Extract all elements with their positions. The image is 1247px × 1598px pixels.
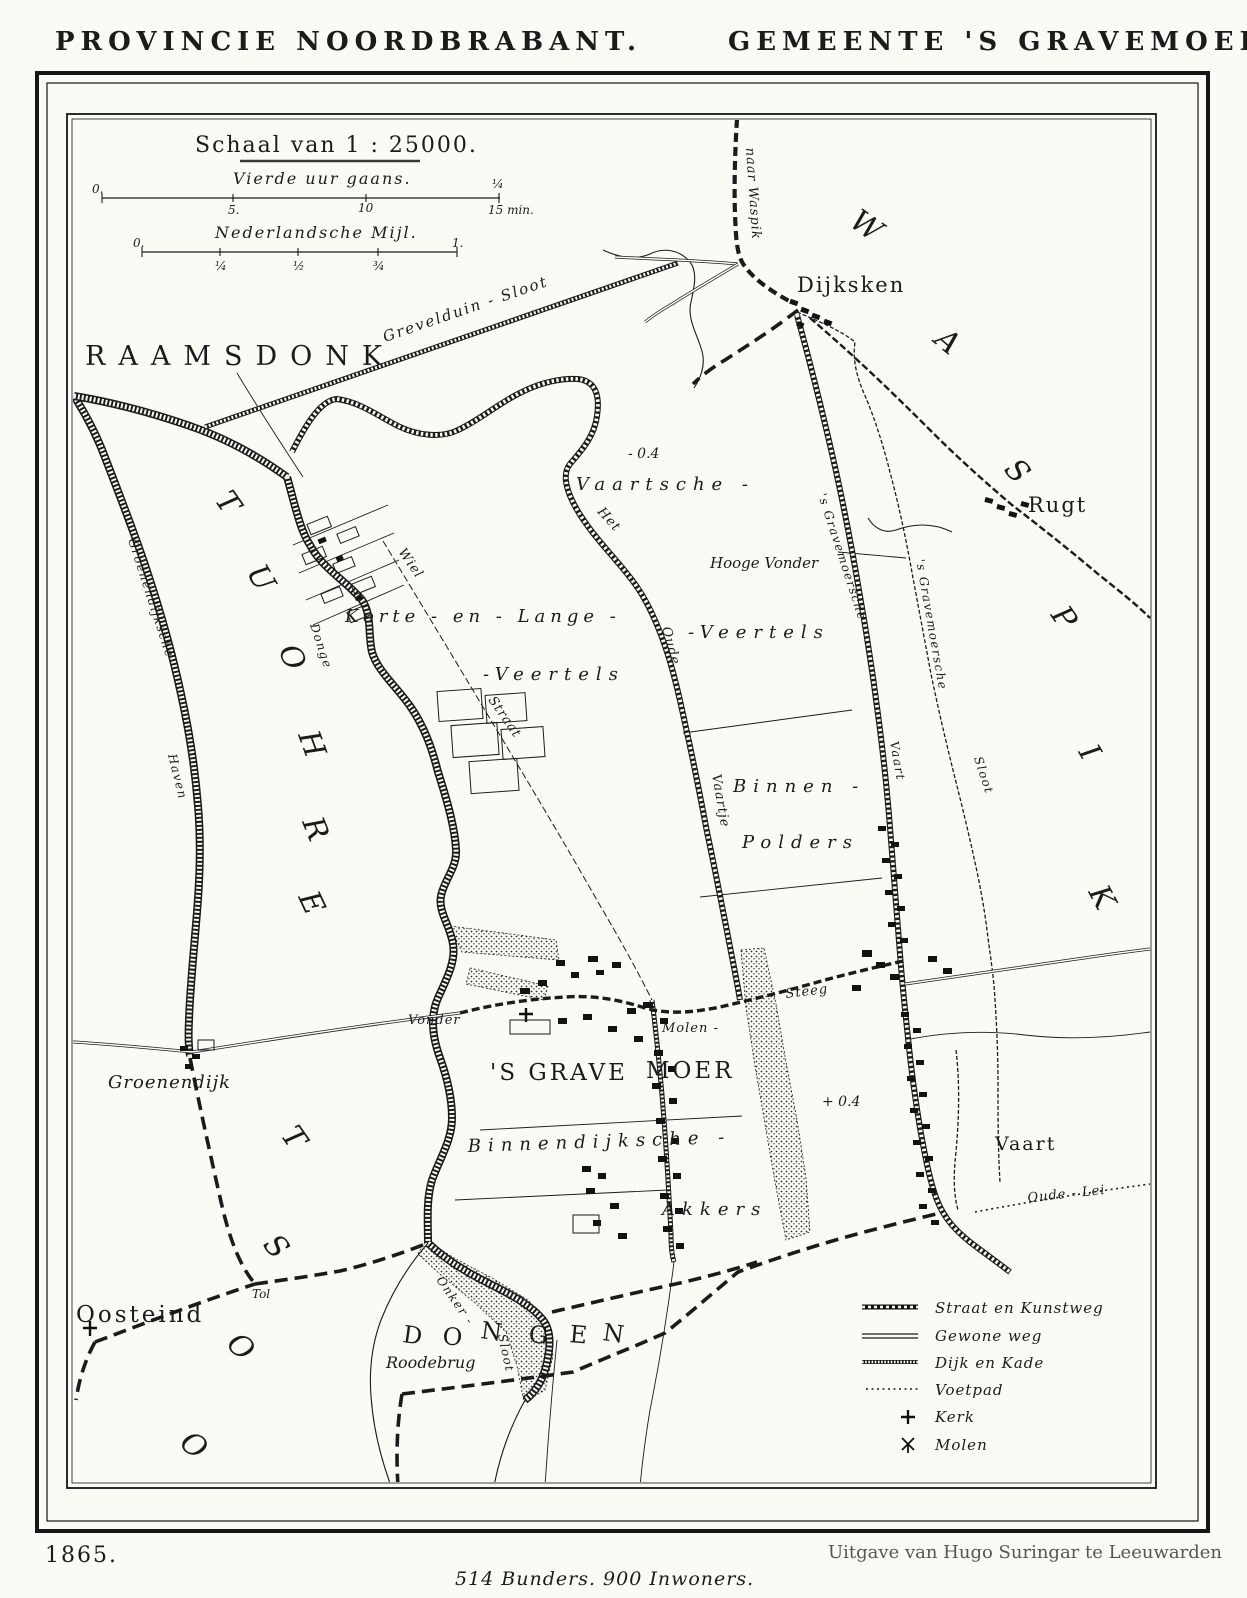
label-elevation-pos: + 0.4 — [822, 1094, 860, 1110]
spread-letter: T — [207, 485, 248, 523]
legend-label: Straat en Kunstweg — [935, 1299, 1104, 1317]
label-oosteind: Oosteind — [76, 1302, 204, 1328]
footer-year: 1865. — [45, 1543, 118, 1568]
legend-label: Gewone weg — [935, 1327, 1042, 1345]
spread-letter: R — [294, 811, 335, 846]
legend-label: Molen — [934, 1436, 988, 1454]
legend-item-paved-road: Straat en Kunstweg — [862, 1299, 1104, 1317]
spread-letter: P — [1043, 599, 1084, 637]
label-polders: Polders — [741, 832, 859, 853]
map-legend: Straat en Kunstweg Gewone weg Dijk en Ka… — [862, 1299, 1104, 1454]
spread-letter: O — [271, 639, 313, 676]
label-groenendijksche: Groenendijksche — [125, 537, 177, 660]
label-donge: Donge — [307, 621, 335, 671]
scale-tick: 1. — [452, 236, 463, 250]
spread-letter: U — [239, 559, 283, 600]
scale-bar1-label: Vierde uur gaans. — [233, 169, 412, 188]
scale-bar2-label: Nederlandsche Mijl. — [214, 223, 418, 242]
label-haven: Haven — [165, 751, 190, 801]
scale-block: Schaal van 1 : 25000. Vierde uur gaans. … — [92, 133, 534, 273]
church-icon — [510, 1008, 550, 1034]
molen-steeg-road — [460, 949, 1150, 1013]
label-dijksken: Dijksken — [797, 273, 905, 297]
legend-item-windmill: Molen — [902, 1436, 988, 1454]
scale-tick: ¾ — [373, 259, 385, 273]
spread-letter: G — [527, 1320, 549, 1350]
label-molen-steeg-2: Steeg — [785, 982, 829, 1002]
label-vaart-road: Vaart — [887, 740, 908, 782]
label-rugt: Rugt — [1028, 493, 1087, 517]
spread-letter: S — [256, 1228, 296, 1266]
scale-tick: 0. — [133, 236, 144, 250]
label-hooge-vonder: Hooge Vonder — [709, 554, 819, 572]
label-naar-waspik: naar Waspik — [742, 147, 763, 240]
gravemoersche-sloot-boundary — [603, 250, 1000, 1182]
spread-letter: E — [290, 885, 331, 921]
scale-tick: 15 min. — [488, 203, 534, 217]
label-gravemoer-east: MOER — [646, 1058, 735, 1084]
spread-letter: W — [843, 203, 890, 251]
legend-label: Kerk — [934, 1408, 975, 1426]
label-korte-lange: Korte - en - Lange - — [344, 606, 621, 627]
scale-tick: 10 — [358, 201, 374, 215]
spread-letter: E — [568, 1320, 588, 1349]
scale-tick: 0. — [92, 182, 103, 196]
spread-letter: A — [926, 319, 967, 362]
church-symbol-icon — [901, 1410, 915, 1424]
sheet-title-province: PROVINCIE NOORDBRABANT. — [55, 27, 642, 57]
spread-letter: K — [1080, 878, 1123, 917]
label-akkers: Akkers — [660, 1199, 767, 1220]
label-vaartje: Vaartje — [708, 773, 732, 829]
legend-label: Voetpad — [935, 1381, 1004, 1399]
legend-label: Dijk en Kade — [934, 1354, 1044, 1372]
legend-item-plain-road: Gewone weg — [862, 1327, 1042, 1345]
label-gravemoer-west: 'S GRAVE — [490, 1060, 628, 1086]
label-vaartsche: Vaartsche - — [576, 474, 755, 495]
label-elevation-neg: - 0.4 — [628, 446, 659, 462]
het-oude-vaartje-canal — [292, 379, 740, 1000]
label-oude-lei: Oude - Lei — [1027, 1183, 1106, 1206]
label-vaart-hamlet: Vaart — [994, 1133, 1056, 1155]
spread-letter: D — [401, 1320, 424, 1350]
legend-item-dike: Dijk en Kade — [862, 1354, 1044, 1372]
spread-letter: N — [479, 1316, 504, 1347]
plain-road-symbol-icon — [862, 1334, 918, 1338]
spread-letter: H — [290, 725, 332, 763]
label-sloot-east: Sloot — [971, 755, 996, 796]
footer-stats: 514 Bunders. 900 Inwoners. — [455, 1568, 754, 1590]
windmill-symbol-icon — [902, 1438, 914, 1453]
scale-tick: ½ — [293, 259, 305, 273]
label-vonder: Vonder — [408, 1013, 461, 1028]
label-tol: Tol — [252, 1287, 270, 1301]
spread-letter: T — [273, 1120, 314, 1158]
scale-tick: ¼ — [215, 259, 227, 273]
label-gravemoersche-sloot: 's Gravemoersche — [913, 558, 950, 691]
label-groenendijk: Groenendijk — [108, 1072, 231, 1093]
legend-item-footpath: Voetpad — [866, 1381, 1004, 1399]
spread-letter: O — [173, 1424, 214, 1467]
label-raamsdonk: RAAMSDONK — [85, 341, 395, 372]
spread-letter: O — [219, 1326, 261, 1368]
spread-letter: S — [997, 452, 1037, 491]
label-binnendijksche: Binnendijksche - — [466, 1127, 731, 1157]
spread-letter: O — [441, 1322, 463, 1352]
label-veertels-west: -Veertels — [483, 664, 625, 685]
spread-letter: I — [1071, 738, 1108, 768]
scale-tick: 5. — [228, 203, 239, 217]
groenendijk-road — [73, 1013, 460, 1052]
scale-tick: ¼ — [492, 177, 504, 191]
map-sheet: PROVINCIE NOORDBRABANT. GEMEENTE 'S GRAV… — [0, 0, 1247, 1598]
label-roodebrug: Roodebrug — [385, 1353, 475, 1372]
map-labels: RAAMSDONK Grevelduin - Sloot naar Waspik… — [76, 147, 1123, 1467]
label-wiel: Wiel — [395, 546, 426, 582]
label-straat: Straat — [485, 694, 524, 741]
label-molen-steeg-1: Molen - — [661, 1021, 719, 1036]
spread-letter: N — [601, 1318, 626, 1349]
legend-item-church: Kerk — [901, 1408, 975, 1426]
footer-publisher: Uitgave van Hugo Suringar te Leeuwarden — [828, 1542, 1222, 1563]
label-het: Het — [593, 504, 623, 535]
groenendijksche-haven-dike — [74, 396, 287, 1056]
sheet-title-municipality: GEMEENTE 'S GRAVEMOER. — [728, 27, 1247, 57]
label-binnen: Binnen - — [732, 776, 865, 797]
naar-waspik-road — [615, 119, 793, 322]
rugt-road — [810, 318, 1150, 618]
field-lines — [237, 373, 1150, 1486]
label-veertels-east: -Veertels — [688, 622, 830, 643]
scale-title: Schaal van 1 : 25000. — [195, 133, 478, 158]
